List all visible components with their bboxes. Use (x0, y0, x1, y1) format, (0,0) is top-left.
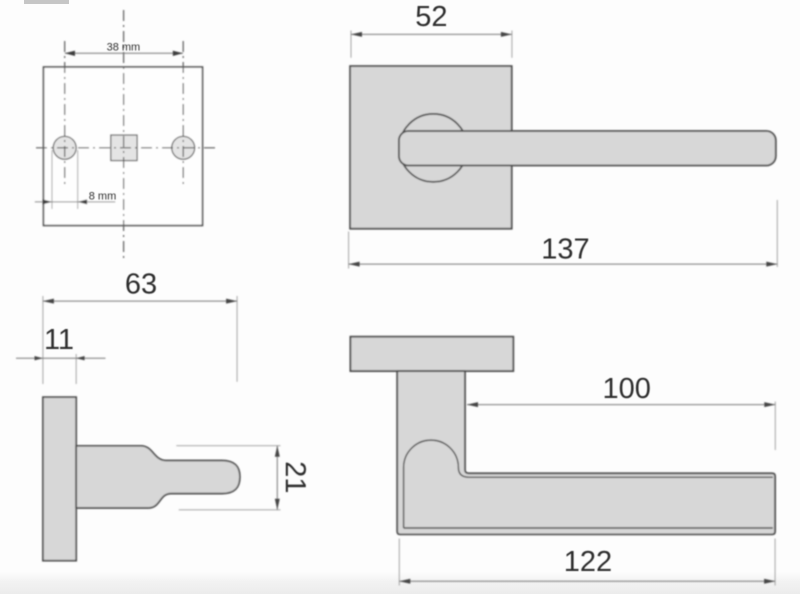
svg-text:122: 122 (564, 546, 612, 578)
svg-text:38 mm: 38 mm (107, 42, 141, 54)
svg-text:100: 100 (603, 373, 651, 405)
svg-text:137: 137 (541, 234, 589, 266)
svg-text:63: 63 (125, 269, 157, 301)
svg-text:8 mm: 8 mm (89, 191, 117, 203)
svg-text:21: 21 (279, 461, 311, 493)
svg-text:11: 11 (44, 324, 74, 356)
svg-text:52: 52 (415, 1, 447, 33)
